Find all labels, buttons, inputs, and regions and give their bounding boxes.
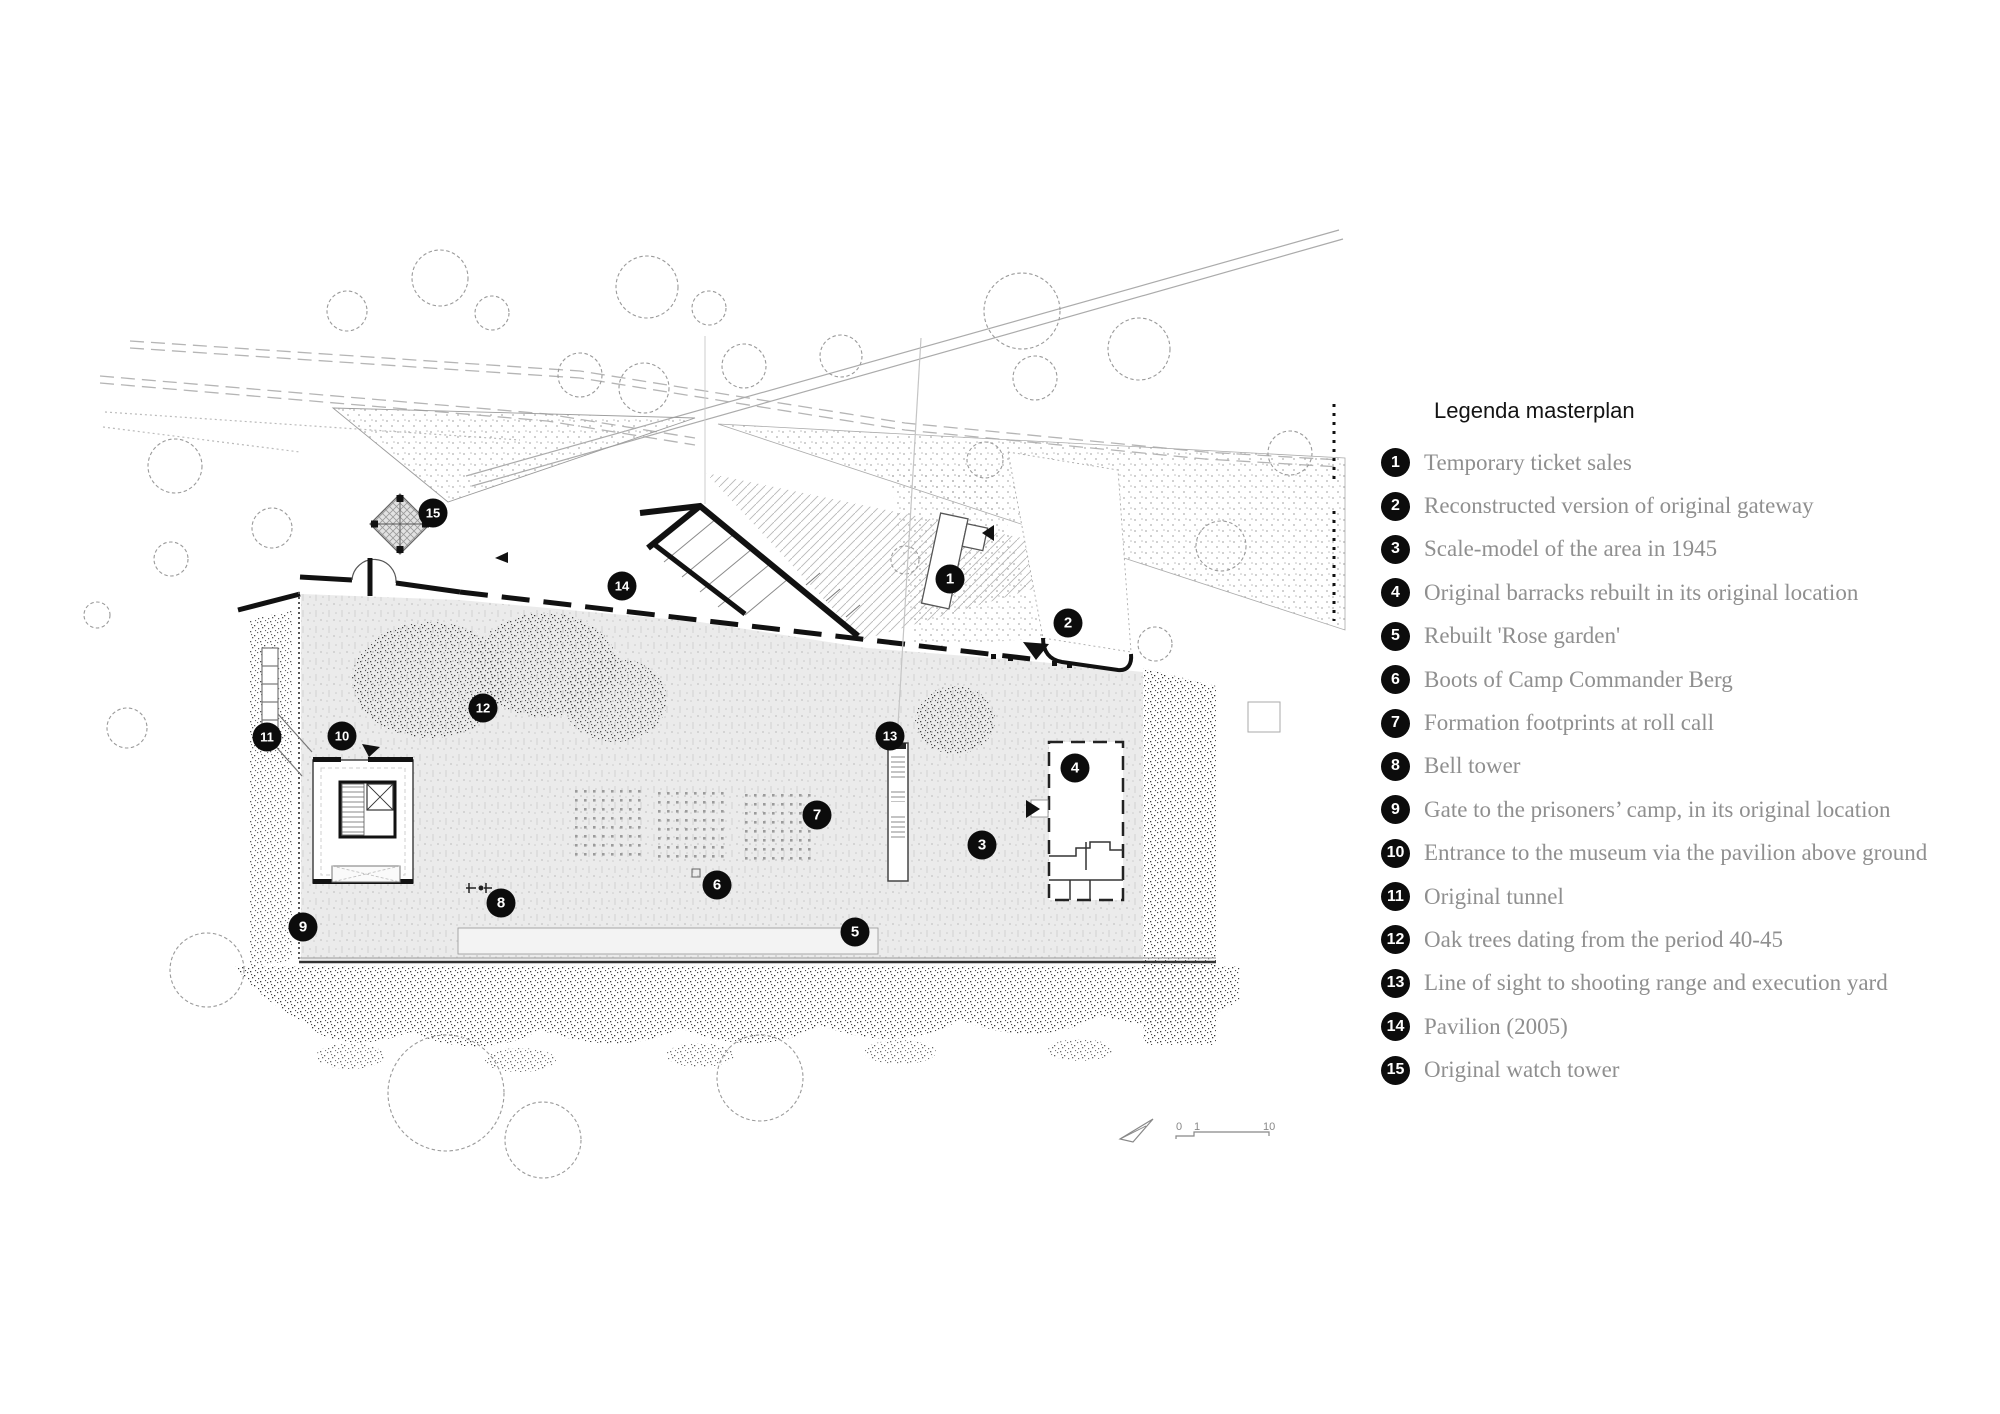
map-marker-11: 11 (253, 723, 282, 752)
legend-item-4: 4Original barracks rebuilt in its origin… (1381, 571, 1996, 614)
legend-item-label: Original watch tower (1424, 1057, 1619, 1083)
map-marker-13: 13 (876, 722, 905, 751)
legend-item-label: Entrance to the museum via the pavilion … (1424, 840, 1927, 866)
legend-item-label: Bell tower (1424, 753, 1520, 779)
svg-text:3: 3 (978, 837, 986, 854)
legend-badge: 4 (1381, 578, 1410, 607)
map-marker-15: 15 (419, 499, 448, 528)
legend-badge: 15 (1381, 1056, 1410, 1085)
legend-title: Legenda masterplan (1434, 398, 1996, 424)
legend-badge: 2 (1381, 492, 1410, 521)
map-marker-14: 14 (608, 572, 637, 601)
scale-label-10: 10 (1263, 1121, 1275, 1133)
svg-text:11: 11 (260, 730, 274, 745)
svg-text:9: 9 (299, 919, 307, 936)
oak-tree-east (915, 686, 995, 754)
legend-item-11: 11Original tunnel (1381, 875, 1996, 918)
legend-item-label: Oak trees dating from the period 40-45 (1424, 927, 1783, 953)
legend-item-3: 3Scale-model of the area in 1945 (1381, 528, 1996, 571)
legend-item-9: 9Gate to the prisoners’ camp, in its ori… (1381, 788, 1996, 831)
hedge-south (235, 966, 1240, 1047)
map-marker-9: 9 (289, 913, 318, 942)
svg-text:15: 15 (426, 506, 440, 521)
svg-text:4: 4 (1071, 760, 1080, 777)
legend-item-14: 14Pavilion (2005) (1381, 1005, 1996, 1048)
map-marker-1: 1 (936, 565, 965, 594)
legend-item-15: 15Original watch tower (1381, 1048, 1996, 1091)
legend-item-label: Reconstructed version of original gatewa… (1424, 493, 1814, 519)
svg-text:6: 6 (713, 877, 721, 894)
legend-item-12: 12Oak trees dating from the period 40-45 (1381, 918, 1996, 961)
legend-badge: 12 (1381, 925, 1410, 954)
svg-text:2: 2 (1064, 615, 1072, 632)
legend-item-1: 1Temporary ticket sales (1381, 441, 1996, 484)
map-marker-3: 3 (968, 831, 997, 860)
arrow-left-small-icon (495, 552, 508, 563)
legend-item-2: 2Reconstructed version of original gatew… (1381, 484, 1996, 527)
legend-item-6: 6Boots of Camp Commander Berg (1381, 658, 1996, 701)
stairs (342, 784, 364, 835)
legend-item-label: Gate to the prisoners’ camp, in its orig… (1424, 797, 1890, 823)
legend-item-label: Scale-model of the area in 1945 (1424, 536, 1717, 562)
legend-item-13: 13Line of sight to shooting range and ex… (1381, 962, 1996, 1005)
plaza-triangle (333, 408, 695, 502)
scale-label-1: 1 (1194, 1121, 1200, 1133)
svg-text:10: 10 (335, 729, 349, 744)
legend-badge: 9 (1381, 795, 1410, 824)
svg-text:13: 13 (883, 729, 897, 744)
legend-badge: 8 (1381, 752, 1410, 781)
elevator (367, 784, 393, 810)
legend-badge: 10 (1381, 839, 1410, 868)
legend-badge: 6 (1381, 665, 1410, 694)
legend-badge: 13 (1381, 969, 1410, 998)
legend-badge: 1 (1381, 448, 1410, 477)
legend-item-label: Original tunnel (1424, 884, 1564, 910)
map-marker-12: 12 (469, 694, 498, 723)
map-marker-10: 10 (328, 722, 357, 751)
map-marker-2: 2 (1054, 609, 1083, 638)
rose-garden (458, 928, 878, 954)
svg-text:5: 5 (851, 924, 859, 941)
svg-text:1: 1 (946, 571, 954, 588)
legend-item-label: Pavilion (2005) (1424, 1014, 1568, 1040)
legend-item-label: Boots of Camp Commander Berg (1424, 667, 1733, 693)
legend-badge: 5 (1381, 622, 1410, 651)
legend-item-7: 7Formation footprints at roll call (1381, 701, 1996, 744)
scale-bar: 0 1 10 (1176, 1121, 1275, 1139)
legend-item-label: Rebuilt 'Rose garden' (1424, 623, 1620, 649)
legend-badge: 7 (1381, 709, 1410, 738)
map-marker-8: 8 (487, 889, 516, 918)
legend-badge: 3 (1381, 535, 1410, 564)
legend-item-10: 10Entrance to the museum via the pavilio… (1381, 832, 1996, 875)
legend-badge: 11 (1381, 882, 1410, 911)
outbuilding (1248, 702, 1280, 732)
legend-badge: 14 (1381, 1012, 1410, 1041)
scale-label-0: 0 (1176, 1121, 1182, 1133)
legend-item-label: Formation footprints at roll call (1424, 710, 1714, 736)
map-marker-7: 7 (803, 801, 832, 830)
legend-item-label: Line of sight to shooting range and exec… (1424, 970, 1888, 996)
svg-text:14: 14 (615, 579, 630, 594)
legend-item-label: Original barracks rebuilt in its origina… (1424, 580, 1858, 606)
legend-item-8: 8Bell tower (1381, 745, 1996, 788)
map-marker-5: 5 (841, 918, 870, 947)
legend-item-label: Temporary ticket sales (1424, 450, 1632, 476)
legend-panel: Legenda masterplan 1Temporary ticket sal… (1381, 398, 1996, 1092)
watch-tower (370, 494, 430, 554)
museum-building (313, 757, 413, 884)
north-arrow-icon (1120, 1119, 1153, 1142)
svg-text:8: 8 (497, 895, 505, 912)
legend-list: 1Temporary ticket sales2Reconstructed ve… (1381, 441, 1996, 1092)
svg-text:7: 7 (813, 807, 821, 824)
map-marker-4: 4 (1061, 754, 1090, 783)
svg-text:12: 12 (476, 701, 490, 716)
legend-item-5: 5Rebuilt 'Rose garden' (1381, 615, 1996, 658)
map-marker-6: 6 (703, 871, 732, 900)
